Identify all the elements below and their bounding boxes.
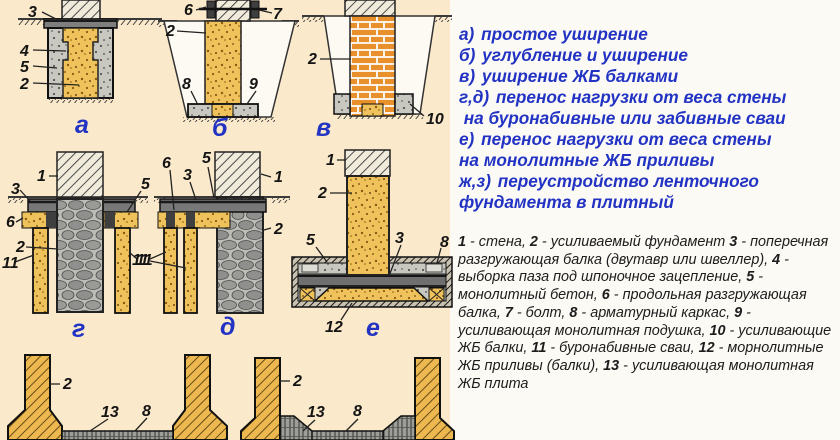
pile-left — [33, 228, 48, 313]
i-beam-section — [166, 212, 175, 228]
method-key: г,д) — [459, 87, 489, 107]
wall-section — [216, 0, 250, 21]
rubble-foundation — [57, 199, 103, 312]
method-key: е) — [459, 129, 474, 149]
legend-item: 7 - болт, — [505, 305, 570, 321]
part-label: 1 — [274, 169, 283, 186]
diagram-letter: в — [316, 114, 331, 142]
part-label: 5 — [202, 150, 212, 167]
rebar-plate-right — [426, 264, 442, 272]
part-label: 3 — [11, 181, 20, 198]
foundation-core — [63, 28, 98, 98]
wall-section — [215, 152, 260, 197]
legend-item: 11 - буронабивные сваи, — [531, 340, 698, 356]
i-beam-section — [105, 212, 115, 228]
part-label: 2 — [273, 221, 283, 238]
text-panel: а) простое уширение б) углубление и ушир… — [455, 0, 838, 440]
part-label: 2 — [15, 239, 25, 256]
wall-section — [62, 0, 100, 19]
part-label: 2 — [317, 185, 327, 202]
part-label: 1 — [37, 168, 46, 185]
diagram-letter: е — [366, 314, 380, 342]
wall-section — [345, 0, 395, 16]
part-label: 2 — [307, 51, 317, 68]
part-label: 8 — [142, 403, 151, 420]
part-label: 11 — [2, 255, 19, 272]
i-beam-section — [186, 212, 195, 228]
part-label: 4 — [19, 43, 29, 60]
method-item-e: е) перенос нагрузки от веса стены на мон… — [459, 129, 838, 171]
diagrams-svg: 3 4 5 2 а — [0, 0, 455, 440]
diagram-letter: б — [212, 114, 229, 142]
part-label: 5 — [306, 232, 316, 249]
diagram-letter: г — [72, 315, 85, 343]
part-label: 7 — [273, 6, 283, 23]
part-label: 9 — [249, 76, 258, 93]
part-label: 3 — [183, 167, 192, 184]
part-label: 5 — [141, 176, 151, 193]
pile-right — [184, 228, 197, 313]
diagram-letter: а — [75, 111, 89, 139]
part-label: 3 — [28, 4, 37, 21]
part-label: 1 — [326, 152, 335, 169]
method-item-zhz: ж,з) переустройство ленточного фундамент… — [459, 171, 838, 213]
method-key: ж,з) — [459, 171, 491, 191]
method-text: уширение ЖБ балками — [477, 66, 678, 86]
method-text: углубление и уширение — [477, 45, 688, 65]
method-item-b: б) углубление и уширение — [459, 45, 838, 66]
part-label: 6 — [6, 214, 15, 231]
part-label: 13 — [307, 404, 325, 421]
diagram-panel: 3 4 5 2 а — [0, 0, 455, 440]
part-label: 10 — [426, 111, 444, 128]
method-key: б) — [459, 45, 475, 65]
method-text: простое уширение — [476, 24, 648, 44]
foundation-reinforcement-infographic: 3 4 5 2 а — [0, 0, 840, 440]
foundation-column — [205, 21, 241, 104]
part-label: 2 — [165, 23, 175, 40]
part-label: 2 — [19, 76, 29, 93]
parts-legend: 1 - стена, 2 - усиливаемый фундамент 3 -… — [458, 234, 836, 393]
method-text: перенос нагрузки от веса стены на моноли… — [459, 129, 772, 170]
part-label: 8 — [353, 403, 362, 420]
rc-haunch — [315, 288, 428, 301]
legend-item: 2 - усиливаемый фундамент — [530, 234, 729, 250]
diagram-letter: д — [220, 313, 235, 341]
part-label: 12 — [325, 319, 343, 336]
part-label: 11 — [132, 252, 149, 269]
part-label: 2 — [292, 373, 302, 390]
part-label: 5 — [20, 59, 30, 76]
method-key: а) — [459, 24, 474, 44]
method-item-v: в) уширение ЖБ балками — [459, 66, 838, 87]
pad-block — [362, 104, 383, 116]
part-label: 8 — [182, 76, 191, 93]
wall-section — [345, 150, 390, 176]
part-label: 3 — [395, 230, 404, 247]
part-label: 13 — [101, 404, 119, 421]
part-label: 6 — [184, 2, 193, 19]
foundation-column — [347, 176, 389, 275]
wall-section — [57, 152, 103, 197]
method-text: перенос нагрузки от веса стены на бурона… — [459, 87, 786, 128]
legend-item: 8 - арматурный каркас, — [569, 305, 734, 321]
methods-list: а) простое уширение б) углубление и ушир… — [459, 24, 838, 213]
part-label: 6 — [162, 155, 171, 172]
i-beam-section — [46, 212, 56, 228]
monolithic-slab — [62, 431, 173, 440]
method-item-a: а) простое уширение — [459, 24, 838, 45]
part-label: 2 — [62, 376, 72, 393]
pile-left — [164, 228, 177, 313]
rebar-plate-left — [302, 264, 318, 272]
method-key: в) — [459, 66, 475, 86]
brick-foundation — [350, 16, 395, 116]
rc-beam-left — [334, 94, 350, 114]
pile-right — [115, 228, 130, 313]
method-item-gd: г,д) перенос нагрузки от веса стены на б… — [459, 87, 838, 129]
part-label: 8 — [440, 234, 449, 251]
method-text: переустройство ленточного фундамента в п… — [459, 171, 759, 212]
legend-item: 1 - стена, — [458, 234, 530, 250]
